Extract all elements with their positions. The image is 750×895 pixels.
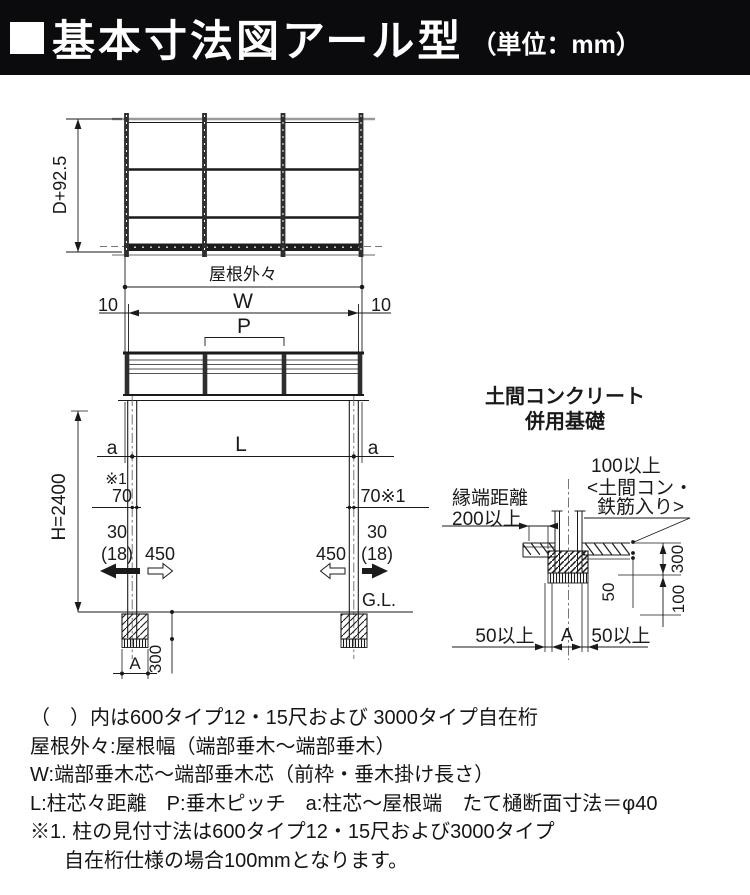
dim-a-foundation: A (129, 654, 141, 673)
detail-dim-a: A (561, 625, 573, 645)
detail-title-line2: 併用基礎 (524, 409, 606, 433)
detail-dim-300: 300 (668, 545, 687, 573)
ground-level-label: G.L. (362, 590, 396, 610)
front-elevation: 10 W 10 P (49, 290, 429, 679)
page: 基本寸法図アール型 （単位：mm） (0, 0, 750, 895)
hollow-arrow-left-icon (321, 564, 346, 579)
slab-right (582, 543, 630, 559)
detail-title-line1: 土間コンクリート (485, 385, 645, 408)
dim-l: L (235, 433, 247, 456)
dim-p: P (237, 315, 251, 338)
title-bar: 基本寸法図アール型 （単位：mm） (0, 0, 750, 75)
note-line-5: ※1. 柱の見付寸法は600タイプ12・15尺および3000タイプ (30, 818, 750, 847)
slab-note-line2: <土間コン・ (587, 477, 693, 499)
dim-30-paren-right: (18) (361, 544, 393, 564)
dim-10-right: 10 (371, 295, 391, 315)
dim-450-right: 450 (316, 544, 346, 564)
note-line-2: 屋根外々:屋根幅（端部垂木〜端部垂木） (30, 733, 750, 762)
height-dim-label: H=2400 (49, 473, 70, 540)
note-line-3: W:端部垂木芯〜端部垂木芯（前枠・垂木掛け長さ） (30, 761, 750, 790)
rafters (124, 113, 363, 257)
plan-view: D+92.5 屋根外々 (50, 113, 386, 352)
dim-10-left: 10 (98, 295, 118, 315)
square-bullet-icon (10, 22, 44, 54)
dim-a-left: a (107, 438, 118, 459)
dim-30-right: 30 (367, 522, 387, 542)
foundation-right (341, 614, 367, 648)
dimension-drawing: D+92.5 屋根外々 10 W 10 P (0, 75, 750, 698)
roof-band (118, 353, 369, 401)
notes-block: （ ）内は600タイプ12・15尺および 3000タイプ自在桁 屋根外々:屋根幅… (0, 698, 750, 875)
detail-dim-100: 100 (669, 585, 688, 613)
dim-w: W (233, 290, 253, 313)
foundation-detail: 土間コンクリート 併用基礎 (442, 385, 693, 660)
slab-note-line1: 100以上 (591, 455, 661, 477)
dim-30-left: 30 (107, 522, 127, 542)
page-title: 基本寸法図アール型 (52, 7, 463, 69)
note-line-6: 自在桁仕様の場合100mmとなります。 (30, 847, 750, 876)
detail-dim-50min-left: 50以上 (475, 625, 534, 647)
detail-block (548, 551, 588, 573)
slab-note-line3: 鉄筋入り> (597, 496, 684, 518)
note-line-4: L:柱芯々距離 P:垂木ピッチ a:柱芯〜屋根端 たて樋断面寸法＝φ40 (30, 790, 750, 819)
dim-300-embed: 300 (146, 645, 165, 673)
note-line-1: （ ）内は600タイプ12・15尺および 3000タイプ自在桁 (30, 704, 750, 733)
unit-label: （単位：mm） (471, 15, 640, 61)
dim-30-paren-left: (18) (101, 544, 133, 564)
foundation-left (122, 614, 148, 648)
dim-450-left: 450 (145, 544, 175, 564)
depth-dimension: D+92.5 (50, 119, 122, 252)
dim-a-right: a (368, 438, 379, 459)
solid-arrow-right-icon (362, 564, 388, 579)
solid-arrow-left-icon (100, 564, 140, 579)
dim-70-right: 70※1 (360, 486, 405, 506)
detail-dim-50: 50 (599, 583, 618, 602)
dim-70-left: 70 (112, 486, 132, 506)
edge-distance-label2: 200以上 (452, 508, 522, 530)
height-dimension: H=2400 (49, 411, 88, 612)
hollow-arrow-right-icon (148, 564, 173, 579)
depth-dim-label: D+92.5 (50, 156, 70, 215)
roof-width-label: 屋根外々 (209, 265, 277, 284)
detail-gravel (548, 573, 588, 583)
edge-distance-label1: 縁端距離 (452, 487, 528, 509)
detail-dim-50min-right: 50以上 (591, 625, 650, 647)
